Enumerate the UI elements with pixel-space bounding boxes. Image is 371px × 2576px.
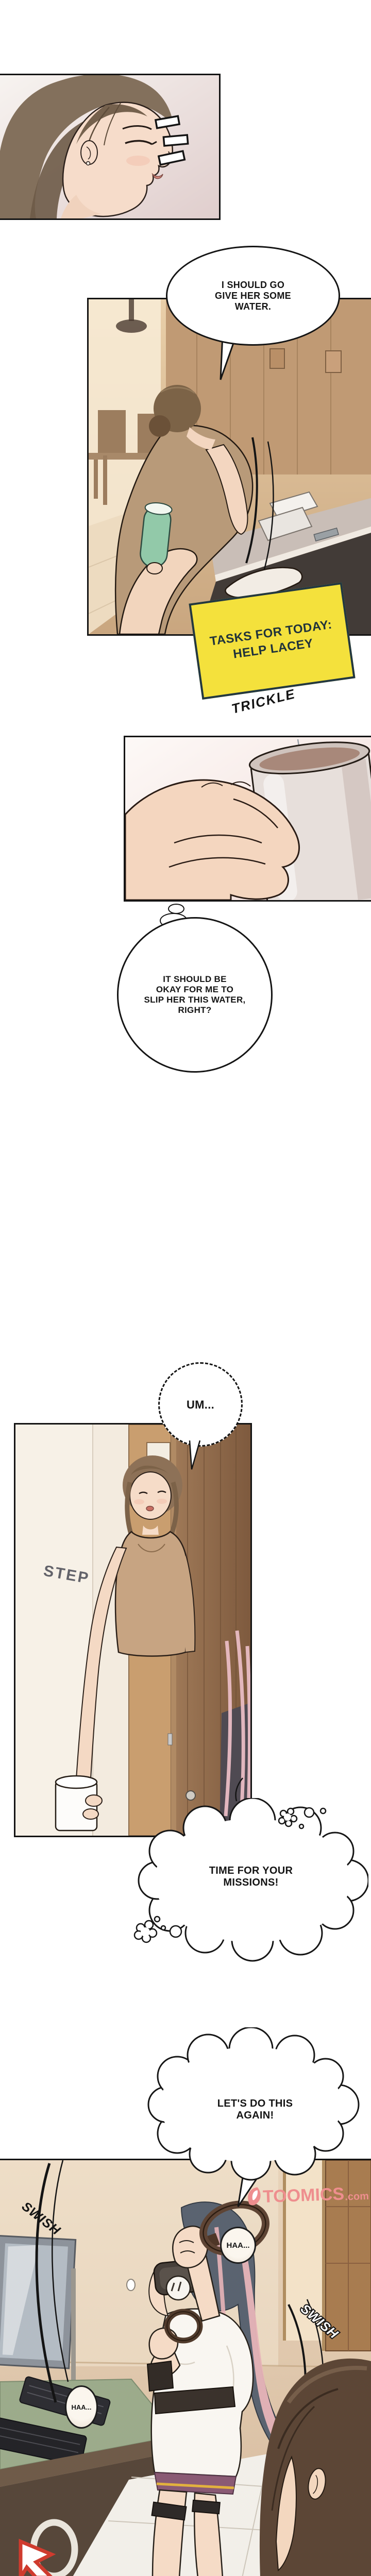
speech-bubble-water: I SHOULD GO GIVE HER SOME WATER. [166, 246, 340, 346]
thought-cloud-again-text: LET'S DO THIS AGAIN! [170, 2098, 340, 2122]
doorway-illustration [15, 1425, 250, 1836]
speech-bubble-haa-lower: HAA... [65, 2385, 98, 2429]
closeup-woman-illustration [0, 75, 219, 218]
um-text: UM... [187, 1399, 214, 1410]
speech-line: I SHOULD GO [167, 280, 339, 291]
haa-text: HAA... [227, 2241, 250, 2250]
speech-line: GIVE HER SOME [167, 291, 339, 301]
thought-line: OKAY FOR ME TO [119, 985, 271, 995]
thought-line: RIGHT? [119, 1005, 271, 1015]
cloud-line: MISSIONS! [174, 1877, 328, 1889]
webtoon-page: I SHOULD GO GIVE HER SOME WATER. TASKS F… [0, 0, 371, 2576]
speech-bubble-haa-upper: HAA... [220, 2227, 256, 2264]
toomics-logo-icon [246, 2186, 262, 2206]
cloud-line: TIME FOR YOUR [174, 1865, 328, 1877]
sticky-note: TASKS FOR TODAY: HELP LACEY [189, 582, 355, 700]
thought-line: IT SHOULD BE [119, 974, 271, 985]
panel-woman-at-doorway [14, 1423, 252, 1837]
speech-line: WATER. [167, 301, 339, 312]
um-bubble-tail [180, 1437, 211, 1473]
toomics-suffix-text: .com [345, 2191, 369, 2203]
cloud-line: AGAIN! [170, 2110, 340, 2122]
panel-closeup-surprised-woman [0, 74, 221, 220]
thought-bubble-slip-water: IT SHOULD BE OKAY FOR ME TO SLIP HER THI… [117, 917, 273, 1073]
thought-line: SLIP HER THIS WATER, [119, 995, 271, 1005]
panel-hand-with-cup [124, 736, 371, 902]
toomics-brand-text: TOOMICS [263, 2185, 345, 2206]
thought-cloud-missions-text: TIME FOR YOUR MISSIONS! [174, 1865, 328, 1889]
haa-text: HAA... [72, 2403, 92, 2411]
thought-dot-small [168, 904, 184, 914]
cloud-line: LET'S DO THIS [170, 2098, 340, 2110]
hand-cup-illustration [125, 737, 371, 900]
speech-bubble-um: UM... [158, 1362, 243, 1447]
